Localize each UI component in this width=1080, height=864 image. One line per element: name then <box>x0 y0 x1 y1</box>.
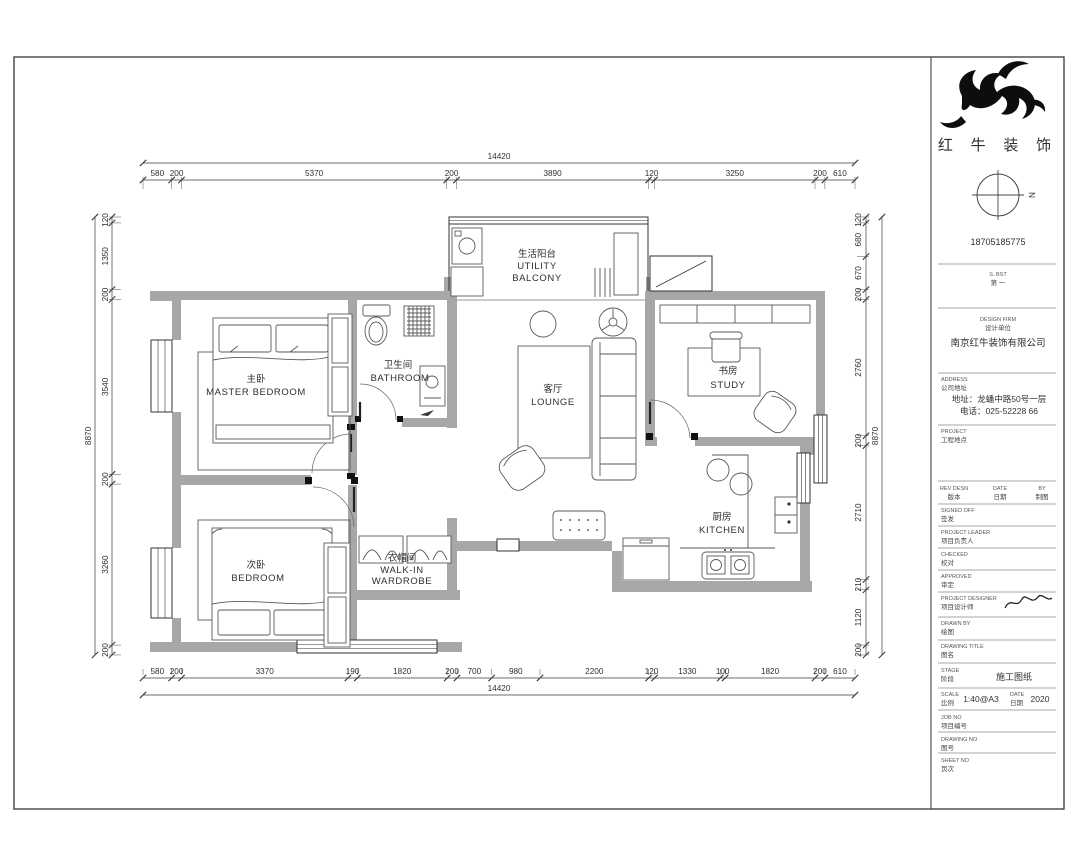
label-master-en: MASTER BEDROOM <box>206 387 306 398</box>
svg-text:700: 700 <box>467 667 481 676</box>
svg-text:610: 610 <box>833 169 847 178</box>
tb-stage-label-zh: 阶段 <box>941 674 955 683</box>
tb-rev-col0-zh: 版本 <box>948 492 962 501</box>
tb-date-label-en: DATE <box>1010 692 1025 698</box>
study-armchair <box>751 388 800 436</box>
study-bay-window <box>650 256 712 291</box>
tb-row5-en: DRAWN BY <box>941 621 971 627</box>
tb-row4-zh: 项目设计师 <box>941 602 974 611</box>
label-study-zh: 书房 <box>718 365 737 377</box>
svg-text:580: 580 <box>150 667 164 676</box>
svg-text:120: 120 <box>645 169 659 178</box>
tb-rev-col2-zh: 制图 <box>1036 492 1049 501</box>
tb-row3-en: APPROVED <box>941 574 972 580</box>
label-balcony-en2: BALCONY <box>512 273 562 284</box>
svg-text:5370: 5370 <box>305 169 324 178</box>
label-kitchen-en: KITCHEN <box>699 525 745 536</box>
tb-row2-zh: 校对 <box>941 558 955 567</box>
bedroom-wardrobe <box>324 543 350 647</box>
tb-row6-zh: 图名 <box>941 650 954 659</box>
doormat <box>553 511 605 540</box>
svg-text:120: 120 <box>854 213 863 227</box>
label-wardrobe-en2: WARDROBE <box>372 576 432 587</box>
svg-text:200: 200 <box>170 169 184 178</box>
tb-address-label-zh: 公司地址 <box>941 383 968 392</box>
tb-dwg-label-zh: 图号 <box>941 744 955 752</box>
svg-text:1820: 1820 <box>761 667 780 676</box>
svg-text:190: 190 <box>346 667 360 676</box>
tb-row3-zh: 审定 <box>941 580 955 589</box>
bedroom-bottom-window <box>297 640 437 653</box>
laundry-rack-icon <box>595 268 610 297</box>
label-bedroom-zh: 次卧 <box>246 559 266 571</box>
stove-icon <box>702 549 754 579</box>
designer-signature <box>1005 596 1052 608</box>
label-kitchen-zh: 厨房 <box>712 511 731 523</box>
svg-text:670: 670 <box>854 266 863 280</box>
sofa <box>592 338 636 480</box>
svg-text:680: 680 <box>854 232 863 246</box>
tb-job-label-zh: 项目编号 <box>941 721 968 730</box>
study-window <box>814 415 827 483</box>
svg-text:200: 200 <box>445 169 459 178</box>
tb-site-label-zh: 工程地点 <box>941 435 968 444</box>
svg-text:1330: 1330 <box>678 667 697 676</box>
tb-address-label-en: ADDRESS <box>941 377 968 383</box>
svg-text:14420: 14420 <box>488 152 511 161</box>
svg-text:200: 200 <box>170 667 184 676</box>
entry-threshold <box>497 539 519 551</box>
svg-text:120: 120 <box>645 667 659 676</box>
shower-icon <box>404 306 434 336</box>
bathroom-door <box>355 384 403 422</box>
kitchen-sink-icon <box>775 497 797 533</box>
tb-firm-label-zh: 设计单位 <box>985 323 1012 332</box>
tb-rev-col1-zh: 日期 <box>994 493 1008 501</box>
svg-text:200: 200 <box>101 643 110 657</box>
drain-arrow-icon <box>420 410 434 416</box>
label-lounge-zh: 客厅 <box>543 383 563 395</box>
tb-rev-col1-en: DATE <box>993 486 1008 492</box>
tb-date-label-zh: 日期 <box>1010 699 1024 707</box>
bedroom-side-window <box>151 548 172 618</box>
toilet-icon <box>363 305 390 345</box>
ceiling-fan-icon <box>599 308 627 336</box>
tb-row0-en: SIGNED OFF <box>941 508 975 514</box>
tb-address-line2: 电话：025-52228 66 <box>960 406 1038 416</box>
drawing-sheet: 主卧 MASTER BEDROOM 卫生间 BATHROOM 客厅 LOUNGE… <box>0 0 1080 864</box>
desk-chair <box>710 332 742 362</box>
svg-text:200: 200 <box>101 472 110 486</box>
floor-plan: 主卧 MASTER BEDROOM 卫生间 BATHROOM 客厅 LOUNGE… <box>84 152 885 698</box>
svg-text:200: 200 <box>854 287 863 301</box>
svg-text:3260: 3260 <box>101 555 110 574</box>
tb-firm-name: 南京红牛装饰有限公司 <box>950 337 1045 349</box>
company-logo <box>940 61 1045 128</box>
label-balcony-zh: 生活阳台 <box>518 248 556 260</box>
svg-text:120: 120 <box>101 213 110 227</box>
tb-row6-en: DRAWING TITLE <box>941 644 984 650</box>
svg-text:8870: 8870 <box>84 426 93 445</box>
tb-address-line1: 地址：龙蟠中路50号一层 <box>952 394 1046 404</box>
tb-row5-zh: 绘图 <box>941 627 954 636</box>
tb-row0-zh: 签发 <box>941 514 955 523</box>
svg-text:200: 200 <box>854 643 863 657</box>
label-master-zh: 主卧 <box>246 373 266 385</box>
phone-number: 18705185775 <box>970 237 1025 247</box>
tb-row2-en: CHECKED <box>941 552 968 558</box>
tb-job-label-en: JOB NO <box>941 715 962 721</box>
tb-row1-zh: 项目负责人 <box>941 536 974 545</box>
label-bedroom-en: BEDROOM <box>231 573 284 584</box>
svg-text:200: 200 <box>445 667 459 676</box>
svg-text:8870: 8870 <box>871 426 880 445</box>
svg-text:1820: 1820 <box>393 667 412 676</box>
tb-dwg-label-en: DRAWING NO <box>941 737 978 743</box>
svg-text:3890: 3890 <box>543 169 562 178</box>
svg-text:3540: 3540 <box>101 377 110 396</box>
north-label: N <box>1027 192 1036 198</box>
svg-text:580: 580 <box>150 169 164 178</box>
tb-stage-value: 施工图纸 <box>996 671 1032 682</box>
svg-text:200: 200 <box>101 287 110 301</box>
svg-text:2710: 2710 <box>854 503 863 522</box>
tb-note-en: S. BST <box>989 272 1007 278</box>
svg-text:200: 200 <box>854 433 863 447</box>
svg-text:14420: 14420 <box>488 684 511 693</box>
armchair <box>495 442 548 494</box>
svg-text:200: 200 <box>813 667 827 676</box>
label-bath-en: BATHROOM <box>371 373 430 384</box>
tb-sheet-label-zh: 页次 <box>941 764 955 773</box>
title-block: 红 牛 装 饰 N 18705185775 S. BST 第 一 DESIGN … <box>938 61 1058 773</box>
bathroom-sink-icon <box>420 366 445 406</box>
tb-note-zh: 第 一 <box>991 278 1006 287</box>
brand-name: 红 牛 装 饰 <box>938 137 1058 154</box>
tb-row4-en: PROJECT DESIGNER <box>941 596 997 602</box>
master-window <box>151 340 172 412</box>
label-study-en: STUDY <box>710 380 745 391</box>
tb-row1-en: PROJECT LEADER <box>941 530 990 536</box>
washing-machine-icon <box>452 228 482 264</box>
svg-text:200: 200 <box>813 169 827 178</box>
tb-stage-label-en: STAGE <box>941 668 960 674</box>
tb-firm-label-en: DESIGN FIRM <box>980 317 1016 323</box>
svg-text:3250: 3250 <box>726 169 745 178</box>
tb-scale-label-en: SCALE <box>941 692 959 698</box>
tb-rev-col2-en: BY <box>1038 486 1046 492</box>
svg-text:980: 980 <box>509 667 523 676</box>
tb-site-label-en: PROJECT <box>941 429 967 435</box>
label-lounge-en: LOUNGE <box>531 397 575 408</box>
kitchen-fixtures <box>623 455 797 580</box>
tb-scale-value: 1:40@A3 <box>963 694 999 704</box>
svg-text:610: 610 <box>833 667 847 676</box>
svg-text:2200: 2200 <box>585 667 604 676</box>
north-compass-icon: N <box>972 170 1036 220</box>
label-balcony-en1: UTILITY <box>517 261 557 272</box>
tb-date-value: 2020 <box>1031 694 1050 704</box>
svg-text:1120: 1120 <box>854 608 863 626</box>
tb-sheet-label-en: SHEET NO <box>941 758 970 764</box>
label-wardrobe-zh: 衣帽间 <box>388 552 417 564</box>
fridge-icon <box>623 538 669 580</box>
svg-text:210: 210 <box>854 577 863 591</box>
label-wardrobe-en1: WALK-IN <box>380 565 423 576</box>
tb-rev-col0-en: REV DESN <box>940 486 968 492</box>
svg-text:2760: 2760 <box>854 358 863 377</box>
svg-text:100: 100 <box>716 667 730 676</box>
kitchen-window <box>797 453 810 503</box>
label-bath-zh: 卫生间 <box>384 359 413 371</box>
svg-text:3370: 3370 <box>256 667 275 676</box>
tb-scale-label-zh: 比例 <box>941 698 954 707</box>
master-wardrobe <box>328 314 352 416</box>
svg-text:1350: 1350 <box>101 247 110 266</box>
